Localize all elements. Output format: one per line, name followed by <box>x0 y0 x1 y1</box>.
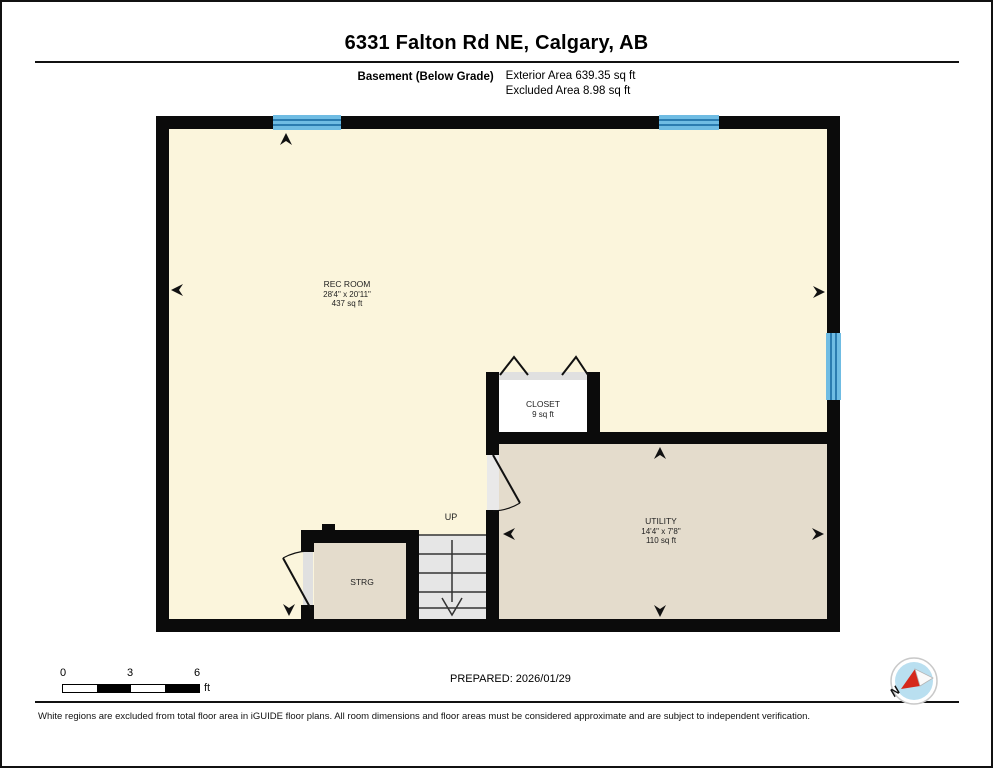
excluded-area-text: Excluded Area 8.98 sq ft <box>506 85 636 97</box>
footer-divider <box>35 701 959 703</box>
scale-unit-label: ft <box>204 682 210 694</box>
wall-storage-top <box>301 530 419 543</box>
room-area: 110 sq ft <box>641 536 680 546</box>
floor-label: Basement (Below Grade) <box>358 70 494 83</box>
room-name: REC ROOM <box>323 280 371 290</box>
wall-storage-top-notch <box>322 524 335 531</box>
scale-tick-0: 0 <box>60 667 66 679</box>
storage-door-threshold <box>303 550 313 606</box>
utility-label: UTILITY 14'4" x 7'8" 110 sq ft <box>641 517 680 546</box>
header-divider <box>35 61 959 63</box>
wall-utility-left-upper <box>486 444 499 455</box>
stairs-floor <box>419 535 486 619</box>
stairs-up-label: UP <box>445 512 458 522</box>
window-right <box>826 333 841 400</box>
wall-storage-right <box>406 543 419 619</box>
wall-left <box>156 116 169 632</box>
room-area: 437 sq ft <box>323 299 371 309</box>
floor-plan-page: 6331 Falton Rd NE, Calgary, AB Basement … <box>0 0 993 768</box>
room-area: 9 sq ft <box>526 410 560 420</box>
wall-utility-left-lower <box>486 510 499 632</box>
page-title: 6331 Falton Rd NE, Calgary, AB <box>2 32 991 55</box>
disclaimer-text: White regions are excluded from total fl… <box>38 711 810 722</box>
wall-storage-left-upper <box>301 530 314 552</box>
room-name: CLOSET <box>526 400 560 410</box>
compass-icon: N <box>887 658 937 704</box>
compass-north-label: N <box>887 683 903 699</box>
window-top-left <box>273 115 341 130</box>
floor-subtitle: Basement (Below Grade) Exterior Area 639… <box>2 70 991 97</box>
wall-storage-left-lower <box>301 605 314 619</box>
closet-door-track <box>499 372 587 380</box>
prepared-date: PREPARED: 2026/01/29 <box>450 673 571 685</box>
wall-top <box>156 116 840 129</box>
scale-tick-6: 6 <box>194 667 200 679</box>
rec-room-label: REC ROOM 28'4" x 20'11" 437 sq ft <box>323 280 371 309</box>
exterior-area-text: Exterior Area 639.35 sq ft <box>506 70 636 82</box>
utility-door-threshold <box>487 455 499 510</box>
closet-label: CLOSET 9 sq ft <box>526 400 560 419</box>
room-name: STRG <box>350 578 374 588</box>
scale-tick-3: 3 <box>127 667 133 679</box>
room-dims: 14'4" x 7'8" <box>641 527 680 537</box>
room-name: UTILITY <box>641 517 680 527</box>
room-dims: 28'4" x 20'11" <box>323 290 371 300</box>
scale-bar <box>62 684 200 693</box>
window-top-right <box>659 115 719 130</box>
wall-utility-top <box>486 432 840 444</box>
storage-label: STRG <box>350 578 374 588</box>
